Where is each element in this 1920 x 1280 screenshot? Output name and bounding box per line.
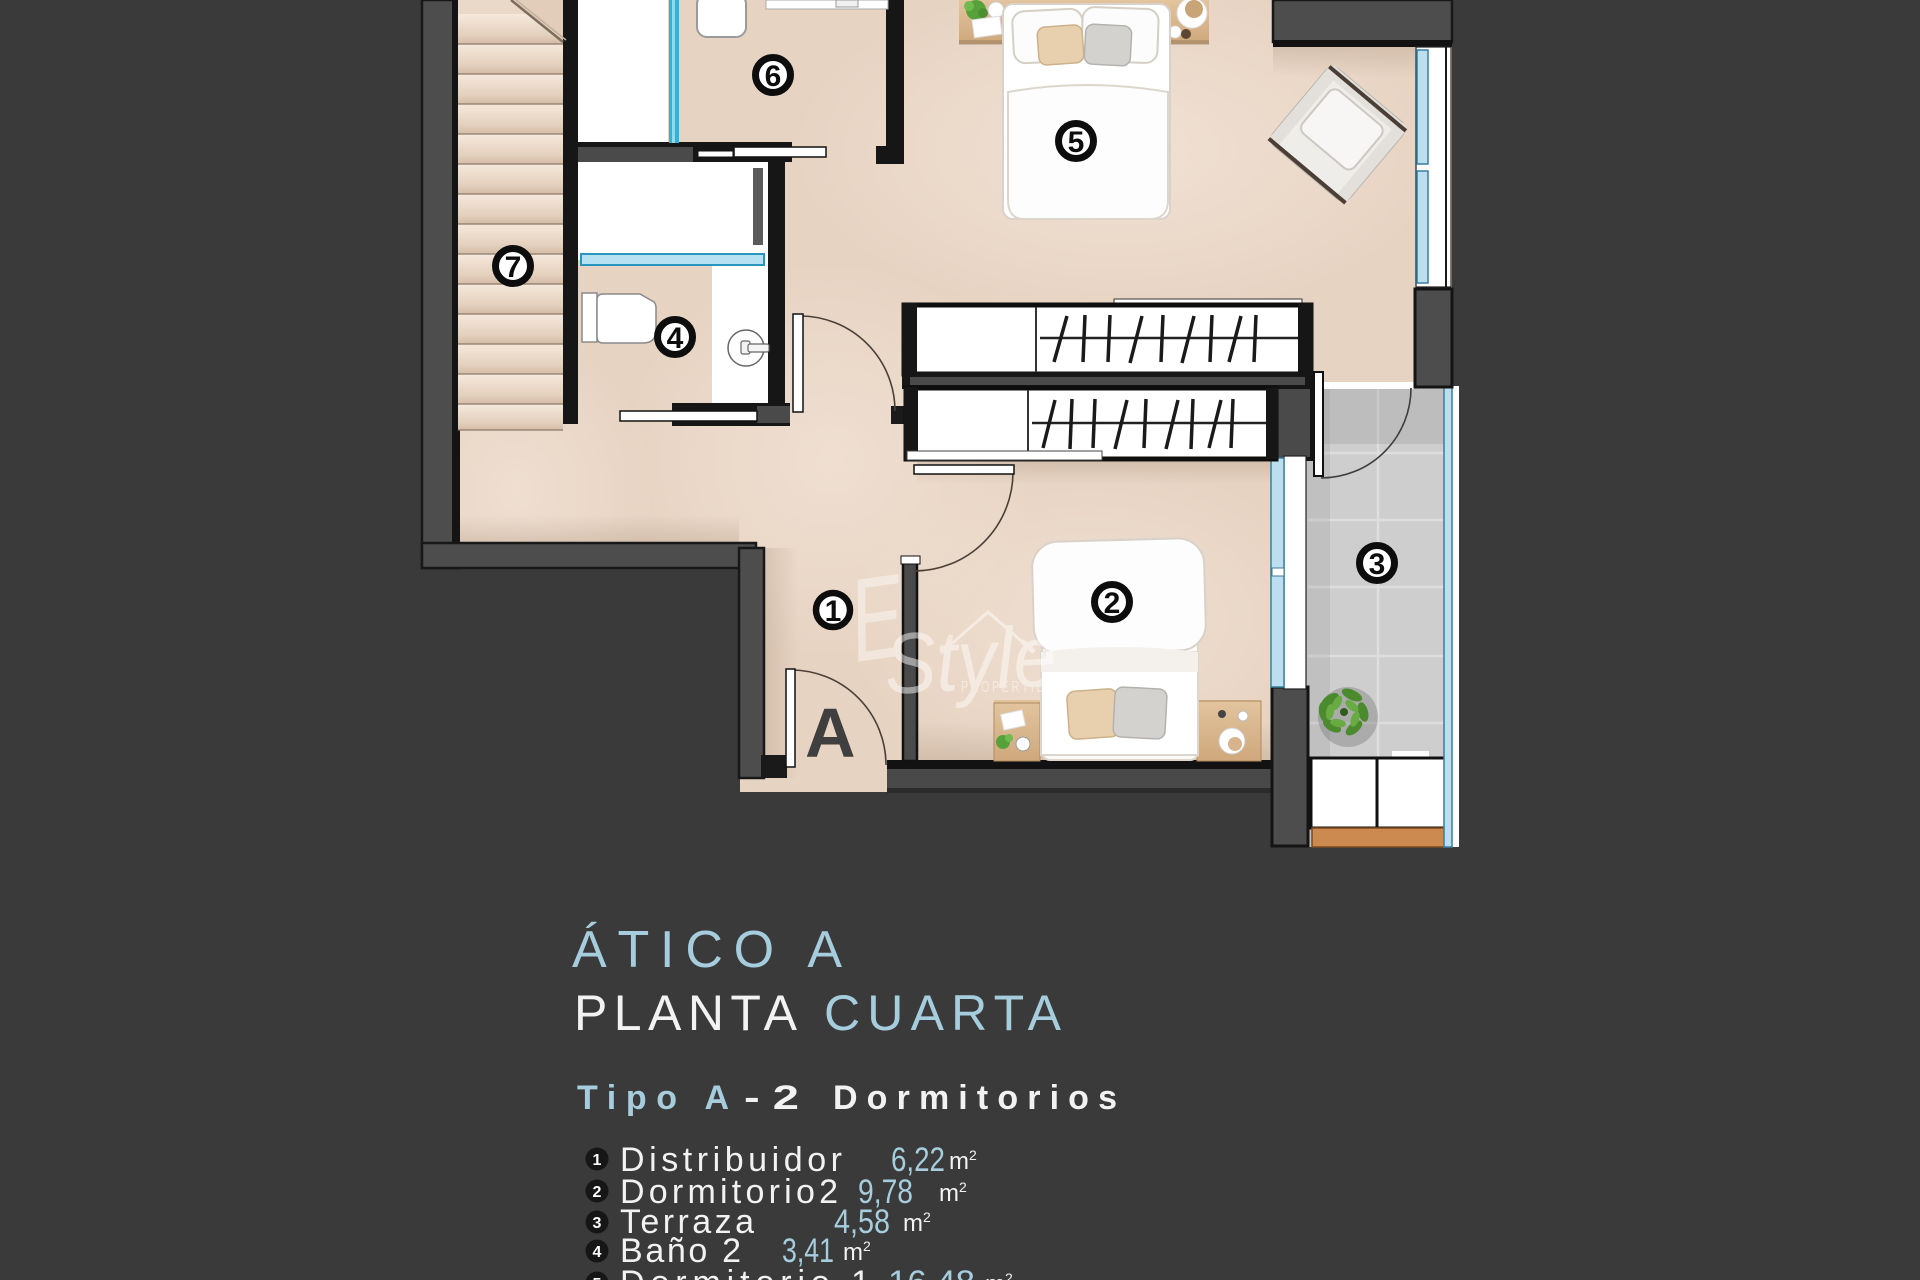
- svg-text:4,58: 4,58: [834, 1203, 890, 1241]
- svg-text:2: 2: [593, 1184, 602, 1201]
- svg-text:4: 4: [593, 1244, 602, 1261]
- svg-text:A: A: [805, 694, 856, 772]
- svg-text:2: 2: [1104, 587, 1121, 620]
- svg-text:3: 3: [1369, 548, 1386, 581]
- svg-text:PROPERTIES: PROPERTIES: [961, 679, 1056, 696]
- svg-text:7: 7: [505, 251, 522, 284]
- svg-text:5: 5: [593, 1276, 602, 1280]
- svg-text:Style: Style: [882, 608, 1059, 713]
- svg-text:1: 1: [593, 1152, 602, 1169]
- svg-text:m2: m2: [985, 1270, 1013, 1280]
- svg-text:3: 3: [593, 1215, 602, 1232]
- svg-text:16,48: 16,48: [888, 1264, 975, 1280]
- svg-text:- 2: - 2: [744, 1079, 799, 1117]
- svg-text:6: 6: [765, 60, 782, 93]
- svg-text:1: 1: [825, 595, 842, 628]
- svg-text:5: 5: [1068, 126, 1085, 159]
- svg-text:4: 4: [667, 322, 684, 355]
